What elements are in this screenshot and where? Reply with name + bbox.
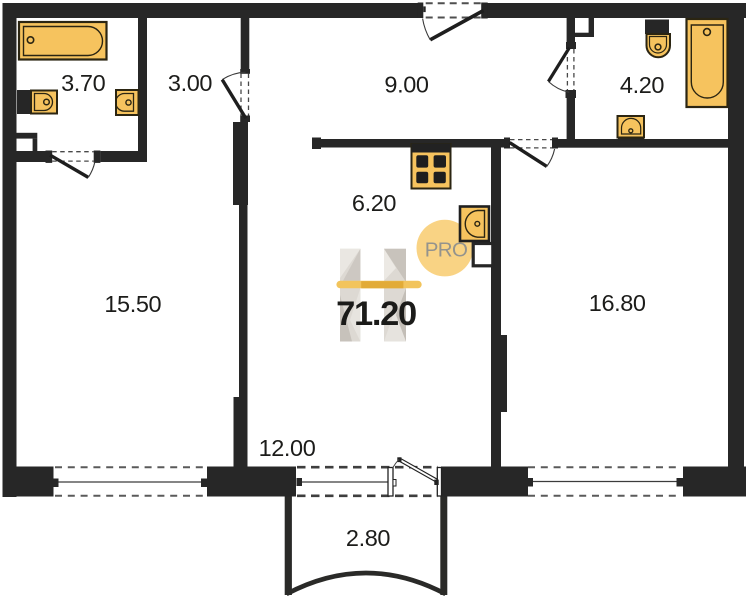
svg-text:16.80: 16.80 [589,290,646,316]
svg-text:12.00: 12.00 [259,435,316,461]
svg-text:3.00: 3.00 [168,70,212,96]
svg-text:3.70: 3.70 [61,70,105,96]
svg-text:15.50: 15.50 [104,291,161,317]
svg-text:71.20: 71.20 [336,295,416,333]
svg-text:9.00: 9.00 [384,72,428,98]
svg-text:2.80: 2.80 [346,525,390,551]
svg-text:4.20: 4.20 [620,72,664,98]
svg-text:6.20: 6.20 [352,190,396,216]
